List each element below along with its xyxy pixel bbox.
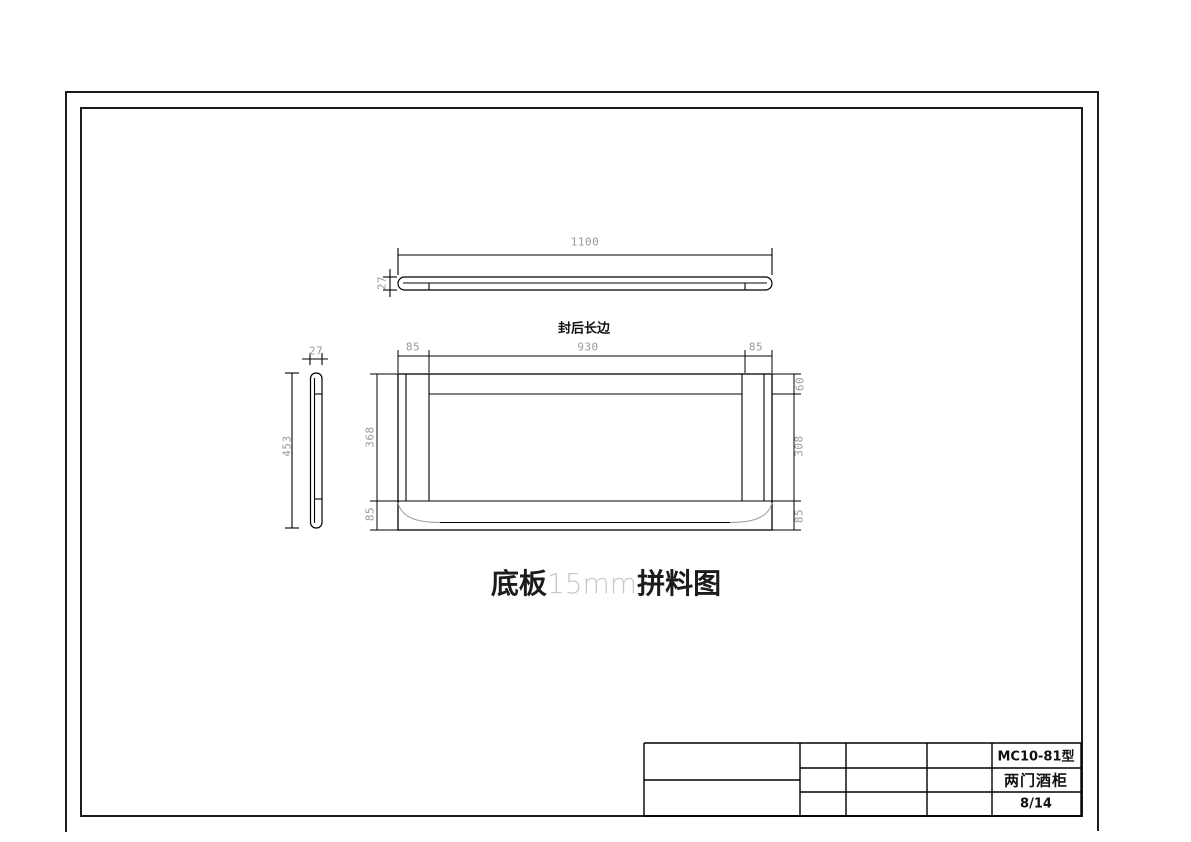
caption-thickness: 15mm <box>547 567 637 600</box>
title-block-sheet-number: 8/14 <box>1020 798 1052 811</box>
dim-height-60: 60 <box>795 377 806 391</box>
title-block-product: 两门酒柜 <box>1004 774 1068 789</box>
dim-width-930: 930 <box>577 342 598 353</box>
dim-thickness-27-side: 27 <box>309 346 323 357</box>
dim-height-85-front-left: 85 <box>365 507 376 521</box>
dim-height-368: 368 <box>365 426 376 447</box>
drawing-linework <box>0 0 1191 842</box>
edge-banding-label: 封后长边 <box>558 323 610 336</box>
caption-part-name: 底板 <box>491 567 547 600</box>
front-view-skirt-arcs <box>398 503 772 523</box>
dim-width-85-right: 85 <box>749 342 763 353</box>
dim-width-85-left: 85 <box>406 342 420 353</box>
front-view-dim-linework <box>370 374 801 530</box>
caption-suffix: 拼料图 <box>637 567 721 600</box>
title-block-model: MC10-81型 <box>997 751 1074 764</box>
front-view-linework <box>398 374 772 530</box>
border-inner <box>81 108 1082 816</box>
cad-drawing-sheet: 1100 27 封后长边 85 930 85 27 453 368 85 60 … <box>0 0 1191 842</box>
dim-length-1100: 1100 <box>571 237 600 248</box>
dim-thickness-27-top: 27 <box>377 276 388 290</box>
dim-height-85-front-right: 85 <box>794 509 805 523</box>
dim-height-308: 308 <box>794 435 805 456</box>
dim-height-453: 453 <box>282 435 293 456</box>
border-outer <box>66 92 1098 832</box>
top-view-linework <box>383 248 772 297</box>
drawing-caption: 底板15mm拼料图 <box>491 570 721 598</box>
